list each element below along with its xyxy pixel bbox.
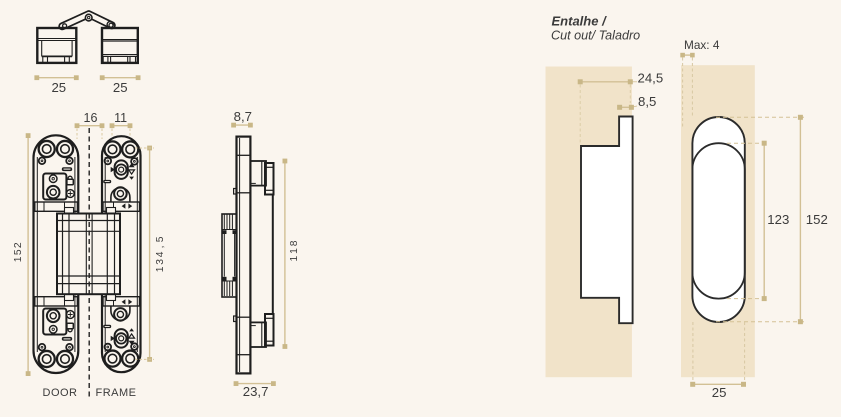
svg-text:Cut out/ Taladro: Cut out/ Taladro <box>551 29 640 43</box>
svg-text:4: 4 <box>155 251 166 257</box>
svg-text:Max: 4: Max: 4 <box>684 38 720 52</box>
svg-text:Entalhe /: Entalhe / <box>552 14 608 29</box>
svg-text:,: , <box>155 245 166 248</box>
svg-text:8,7: 8,7 <box>234 109 252 124</box>
svg-text:25: 25 <box>51 80 66 95</box>
svg-text:16: 16 <box>84 111 98 125</box>
svg-text:123: 123 <box>767 212 789 227</box>
svg-text:2: 2 <box>13 242 24 248</box>
svg-text:1: 1 <box>155 266 166 272</box>
svg-text:25: 25 <box>113 80 128 95</box>
svg-text:11: 11 <box>114 111 127 125</box>
svg-text:8: 8 <box>289 240 300 246</box>
svg-text:DOOR: DOOR <box>43 387 78 399</box>
svg-text:3: 3 <box>155 259 166 265</box>
svg-text:8,5: 8,5 <box>638 94 656 109</box>
svg-text:5: 5 <box>155 236 166 242</box>
svg-text:1: 1 <box>289 255 300 261</box>
svg-text:1: 1 <box>289 248 300 254</box>
svg-text:24,5: 24,5 <box>638 71 664 86</box>
svg-text:25: 25 <box>712 385 727 400</box>
svg-text:FRAME: FRAME <box>96 387 137 399</box>
svg-text:23,7: 23,7 <box>243 384 269 399</box>
svg-text:5: 5 <box>13 249 24 255</box>
svg-text:1: 1 <box>13 256 24 262</box>
svg-text:152: 152 <box>806 212 828 227</box>
